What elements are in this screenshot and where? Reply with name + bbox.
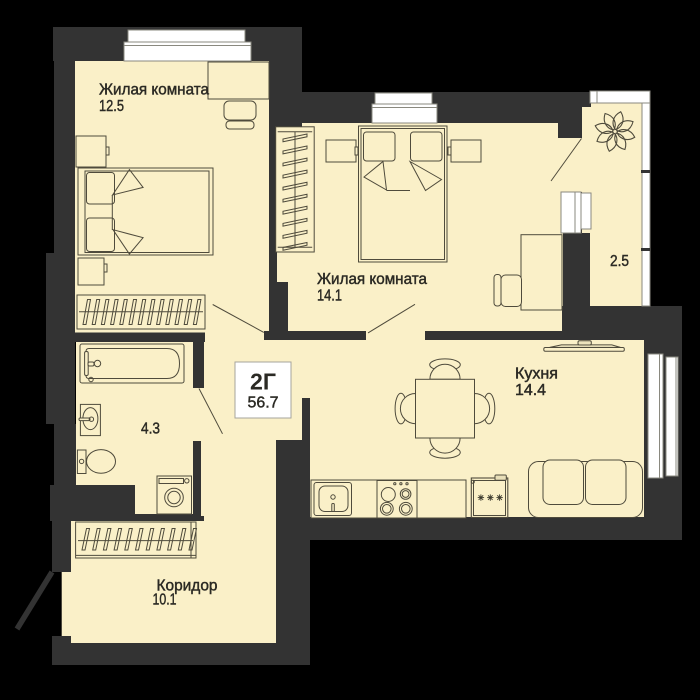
svg-text:10.1: 10.1 bbox=[153, 592, 177, 609]
svg-text:56.7: 56.7 bbox=[248, 395, 279, 412]
svg-text:12.5: 12.5 bbox=[99, 98, 124, 115]
svg-text:Жилая комната: Жилая комната bbox=[99, 82, 209, 99]
svg-text:Кухня: Кухня bbox=[515, 366, 558, 383]
svg-text:2Г: 2Г bbox=[250, 369, 276, 395]
svg-text:2.5: 2.5 bbox=[610, 253, 629, 270]
svg-text:Жилая комната: Жилая комната bbox=[317, 271, 427, 288]
svg-text:14.1: 14.1 bbox=[317, 288, 342, 305]
svg-text:14.4: 14.4 bbox=[515, 382, 546, 399]
svg-text:4.3: 4.3 bbox=[141, 421, 160, 438]
